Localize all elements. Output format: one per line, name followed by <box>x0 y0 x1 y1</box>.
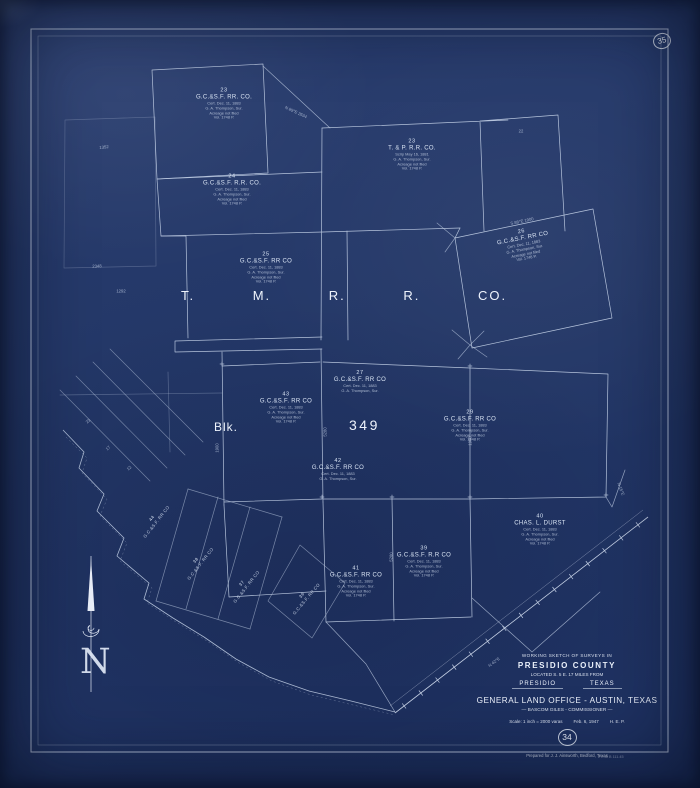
bearing-annotation: 5280 <box>323 427 328 436</box>
title-commissioner: — BASCOM GILES - COMMISSIONER — <box>472 708 662 713</box>
railroad-company-label: T. M. R. R. CO. <box>181 288 507 303</box>
title-located: LOCATED S. 5 E. 17 MILES FROM <box>472 672 662 677</box>
parcel-label: 25G.C.&S.F. RR COCert. Dec. 11, 1883G. A… <box>240 251 292 284</box>
title-initials: H. E. P. <box>610 719 625 724</box>
parcel-label: 27G.C.&S.F. RR COCert. Dec. 11, 1883G. A… <box>334 370 386 394</box>
title-county: PRESIDIO COUNTY <box>472 661 662 670</box>
north-letter: N <box>80 642 111 682</box>
bearing-annotation: 1292 <box>116 289 125 294</box>
title-prepared: Prepared for J. J. Ainsworth, Bedford, T… <box>472 753 662 758</box>
title-town: PRESIDIO <box>512 681 563 689</box>
parcel-label: 42G.C.&S.F. RR COCert. Dec. 11, 1883G. A… <box>312 458 364 482</box>
parcel-label: 23T. & P. R.R. CO.Scrip May 16, 1881G. A… <box>388 138 436 171</box>
north-arrow-head <box>88 558 95 611</box>
bearing-annotation: 5280 <box>388 552 393 561</box>
title-town-state: PRESIDIO TEXAS <box>472 681 662 689</box>
bearing-annotation: 2348 <box>92 263 101 268</box>
margin-stamp-note: 2 E48 B 111.45 <box>598 755 624 759</box>
title-office: GENERAL LAND OFFICE - AUSTIN, TEXAS <box>472 696 662 705</box>
blueprint-sheet: T. M. R. R. CO. Blk. 349 N 35 23G.C.&S.F… <box>0 0 700 788</box>
title-state: TEXAS <box>583 681 622 689</box>
parcel-label: 24G.C.&S.F. R.R. CO.Cert. Dec. 11, 1883G… <box>203 173 261 206</box>
bearing-annotation: 22 <box>519 129 524 134</box>
title-heading: WORKING SKETCH OF SURVEYS IN <box>472 653 662 658</box>
parcel-label: 41G.C.&S.F. RR COCert. Dec. 11, 1883G. A… <box>330 565 382 598</box>
bearing-annotation: 1900 <box>468 436 473 445</box>
title-block: WORKING SKETCH OF SURVEYS IN PRESIDIO CO… <box>472 653 662 758</box>
bearing-annotation: 1352 <box>99 144 109 150</box>
parcel-label: 43G.C.&S.F. RR COCert. Dec. 11, 1883G. A… <box>260 391 312 424</box>
title-scale: Scale: 1 inch = 2000 varas <box>509 719 562 724</box>
parcel-label: 39G.C.&S.F. R.R COCert. Dec. 11, 1883G. … <box>397 545 451 578</box>
parcel-label: 23G.C.&S.F. RR. CO.Cert. Dec. 11, 1883G.… <box>196 87 252 120</box>
sheet-number: 34 <box>558 729 577 746</box>
bearing-annotation: 1900 <box>215 443 220 452</box>
title-date: Feb. 6, 1947 <box>573 719 598 724</box>
block-abbrev-label: Blk. <box>214 420 238 434</box>
title-scale-row: Scale: 1 inch = 2000 varas Feb. 6, 1947 … <box>472 719 662 724</box>
block-number-label: 349 <box>349 417 380 433</box>
parcel-label: 40CHAS. L. DURSTCert. Dec. 11, 1883G. A.… <box>514 513 566 546</box>
